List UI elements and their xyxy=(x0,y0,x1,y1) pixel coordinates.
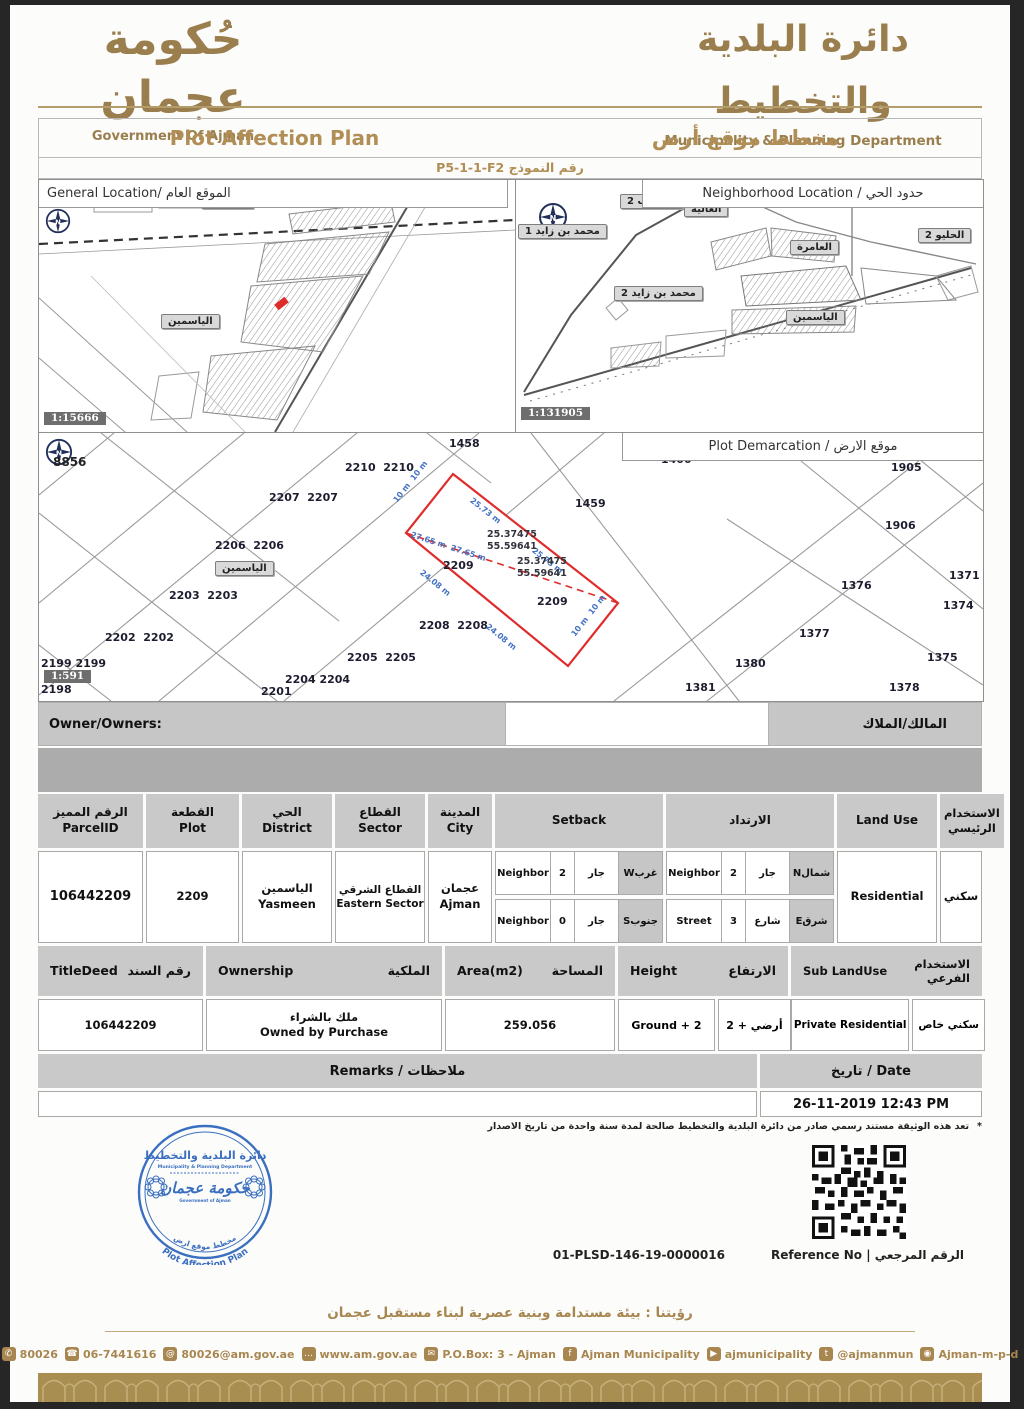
plot-1905: 1905 xyxy=(891,461,922,474)
district-label-amerah: العامرة xyxy=(790,240,839,255)
header-city-en: City xyxy=(447,821,473,837)
setback-west-value: 2 xyxy=(551,851,575,895)
height-value-ar: أرضي + 2 xyxy=(718,999,791,1051)
setback-west-type-ar: جار xyxy=(575,851,619,895)
contact-text: Ajman Municipality xyxy=(581,1348,700,1361)
area-value: 259.056 xyxy=(445,999,615,1051)
reference-row: 01-PLSD-146-19-0000016 Reference No | ال… xyxy=(38,1248,982,1262)
setback-north-type-ar: جار xyxy=(746,851,790,895)
maps-row: General Location/ الموقع العام N الياسمي… xyxy=(38,179,982,431)
header-plot-ar: القطعة xyxy=(171,805,214,821)
city-value-en: Ajman xyxy=(440,897,481,913)
height-value-group: Ground + 2 أرضي + 2 xyxy=(618,999,788,1051)
facebook-icon: f xyxy=(563,1347,577,1361)
owner-label-ar: المالك/الملاك xyxy=(862,717,981,732)
header-district-ar: الحي xyxy=(272,805,301,821)
ownership-table-header: TitleDeed رقم السند Ownership الملكية Ar… xyxy=(38,946,982,996)
district-label-yasmeen: الياسمين xyxy=(161,314,220,329)
contact-text: 06-7441616 xyxy=(83,1348,156,1361)
header-titledeed: TitleDeed رقم السند xyxy=(38,946,203,996)
header-sublanduse-en: Sub LandUse xyxy=(803,964,887,978)
ownership-value: ملك بالشراء Owned by Purchase xyxy=(206,999,442,1051)
sector-value-en: Eastern Sector xyxy=(336,897,423,911)
plot-1378: 1378 xyxy=(889,681,920,694)
header-sublanduse: Sub LandUse الاستخدام الفرعي xyxy=(791,946,982,996)
plot-2203: 2203 2203 xyxy=(169,589,238,602)
contact-text: @ajmanmun xyxy=(837,1348,913,1361)
contact-item: …www.am.gov.ae xyxy=(302,1347,418,1361)
setback-north-east-group: Neighbor 2 جار شمالN Street 3 شارع شرقE xyxy=(666,851,834,943)
setback-south-type-ar: جار xyxy=(575,899,619,943)
titledeed-value: 106442209 xyxy=(38,999,203,1051)
general-map-scale: 1:15666 xyxy=(44,412,106,425)
department-arabic-calligraphy: دائرة البلدية والتخطيط xyxy=(628,9,978,133)
city-value: عجمان Ajman xyxy=(428,851,492,943)
header-setback-ar: الارتداد xyxy=(666,794,834,848)
header-sector-ar: القطاع xyxy=(359,805,401,821)
form-number: رقم النموذج P5-1-1-F2 xyxy=(38,156,982,179)
plot-1375: 1375 xyxy=(927,651,958,664)
plot-1459: 1459 xyxy=(575,497,606,510)
landuse-value: Residential xyxy=(837,851,937,943)
plot-2204: 2204 2204 xyxy=(285,673,350,686)
plot-1381: 1381 xyxy=(685,681,716,694)
sector-value-ar: القطاع الشرقي xyxy=(339,883,421,897)
height-value-en: Ground + 2 xyxy=(618,999,715,1051)
contact-item: ◉Ajman-m-p-d xyxy=(920,1347,1018,1361)
setback-north-value: 2 xyxy=(722,851,746,895)
website-icon: … xyxy=(302,1347,316,1361)
stamp-dept-en: Municipality & Planning Department xyxy=(158,1164,253,1170)
plot-2208: 2208 2208 xyxy=(419,619,488,632)
owner-label-ar-cell: المالك/الملاك xyxy=(768,702,982,746)
setback-east-type: Street xyxy=(666,899,722,943)
coordinate-lon: 55.59641 xyxy=(517,568,567,579)
setback-east-type-ar: شارع xyxy=(746,899,790,943)
header-plot: القطعة Plot xyxy=(146,794,239,848)
disclaimer-bullet: * xyxy=(977,1121,982,1132)
contact-text: P.O.Box: 3 - Ajman xyxy=(442,1348,556,1361)
setback-south-row: Neighbor 0 جار جنوبS xyxy=(495,899,663,943)
demarcation-coordinates: 25.3747555.5964125.3747555.59641 xyxy=(39,433,983,701)
plot-2209: 2209 xyxy=(443,559,474,572)
title-english: Plot Affection Plan xyxy=(39,119,510,157)
header-sublanduse-ar: الاستخدام الفرعي xyxy=(898,957,970,986)
contact-text: Ajman-m-p-d xyxy=(938,1348,1018,1361)
header-titledeed-en: TitleDeed xyxy=(50,963,118,979)
setback-east-direction: شرقE xyxy=(790,899,834,943)
reference-value: 01-PLSD-146-19-0000016 xyxy=(553,1248,725,1262)
city-value-ar: عجمان xyxy=(441,881,479,897)
date-header: تاريخ / Date xyxy=(760,1054,982,1088)
header-parcelid-ar: الرقم المميز xyxy=(53,805,128,821)
contact-item: ☎06-7441616 xyxy=(65,1347,156,1361)
stamp-gov-en: Government of Ajman xyxy=(179,1198,231,1203)
plot-1380: 1380 xyxy=(735,657,766,670)
document-page: حُكومة عجمان Government Of Ajman دائرة ا… xyxy=(10,5,1010,1402)
fax-icon: ☎ xyxy=(65,1347,79,1361)
stamp-gov-ar: حكومة عجمان xyxy=(160,1179,250,1197)
header-ownership: Ownership الملكية xyxy=(206,946,442,996)
header-sector: القطاع Sector xyxy=(335,794,425,848)
owner-value-cell xyxy=(506,702,768,746)
neighborhood-labels: الرقايب 2العاليةالعامرةالحليو 2محمد بن ز… xyxy=(516,180,983,432)
plot-2209: 2209 xyxy=(537,595,568,608)
stamp-dept-ar: دائرة البلدية والتخطيط xyxy=(144,1149,267,1162)
general-location-map: General Location/ الموقع العام N الياسمي… xyxy=(38,179,516,433)
plot-demarcation-map: Plot Demarcation / موقع الارض N 8856 145… xyxy=(38,432,984,702)
neighborhood-location-map: Neighborhood Location / حدود الحي N الرق… xyxy=(515,179,984,433)
date-value: 26-11-2019 12:43 PM xyxy=(760,1091,982,1117)
contact-item: t@ajmanmun xyxy=(819,1347,913,1361)
header-height-ar: الارتفاع xyxy=(728,963,776,979)
contact-item: ✉P.O.Box: 3 - Ajman xyxy=(424,1347,556,1361)
setback-west-south-group: Neighbor 2 جار غربW Neighbor 0 جار جنوبS xyxy=(495,851,663,943)
general-location-title: General Location/ الموقع العام xyxy=(38,179,508,208)
header-mainuse-ar: الاستخدام الرئيسي xyxy=(940,794,1004,848)
vision-statement: رؤيتنا : بيئة مستدامة وبنية عصرية لبناء … xyxy=(10,1305,1010,1321)
setback-west-row: Neighbor 2 جار غربW xyxy=(495,851,663,895)
header-parcelid-en: ParcelID xyxy=(62,821,118,837)
header-district: الحي District xyxy=(242,794,332,848)
header-plot-en: Plot xyxy=(179,821,206,837)
header-setback-en: Setback xyxy=(495,794,663,848)
district-label-mbz2: محمد بن زايد 2 xyxy=(614,286,703,301)
header-landuse: Land Use xyxy=(837,794,937,848)
plot-1906: 1906 xyxy=(885,519,916,532)
svg-text:N: N xyxy=(550,214,557,223)
ownership-value-en: Owned by Purchase xyxy=(260,1025,388,1040)
plot-affection-plan-document: { "colors":{"gold":"#A8864F","stamp_blue… xyxy=(0,0,1024,1409)
setback-north-direction: شمالN xyxy=(790,851,834,895)
header-area: Area(m2) المساحة xyxy=(445,946,615,996)
contact-item: ✆80026 xyxy=(2,1347,58,1361)
header-ownership-en: Ownership xyxy=(218,963,293,979)
title-arabic: مخطط موقع أرض xyxy=(510,119,981,157)
ownership-table-row: 106442209 ملك بالشراء Owned by Purchase … xyxy=(38,999,982,1051)
mainuse-value: سكني xyxy=(940,851,982,943)
contact-text: 80026 xyxy=(20,1348,58,1361)
email-icon: @ xyxy=(163,1347,177,1361)
district-label-yasmeen: الياسمين xyxy=(786,310,845,325)
plot-2198: 2198 xyxy=(41,683,72,696)
contact-text: 80026@am.gov.ae xyxy=(181,1348,294,1361)
phone-icon: ✆ xyxy=(2,1347,16,1361)
setback-west-direction: غربW xyxy=(619,851,663,895)
coordinate-lat: 25.37475 xyxy=(487,529,537,540)
plot-demarcation-title: Plot Demarcation / موقع الارض xyxy=(622,432,984,461)
plot-1377: 1377 xyxy=(799,627,830,640)
district-value-en: Yasmeen xyxy=(258,897,316,913)
district-label-yasmeen: الياسمين xyxy=(215,561,274,576)
contact-item: @80026@am.gov.ae xyxy=(163,1347,294,1361)
setback-east-row: Street 3 شارع شرقE xyxy=(666,899,834,943)
plot-1376: 1376 xyxy=(841,579,872,592)
twitter-icon: t xyxy=(819,1347,833,1361)
setback-south-type: Neighbor xyxy=(495,899,551,943)
plot-2210: 2210 2210 xyxy=(345,461,414,474)
coordinate-lat: 25.37475 xyxy=(517,556,567,567)
remarks-header-row: Remarks / ملاحظات تاريخ / Date xyxy=(38,1054,982,1088)
plot-table-row: 106442209 2209 الياسمين Yasmeen القطاع ا… xyxy=(38,851,982,943)
plot-2205: 2205 2205 xyxy=(347,651,416,664)
government-arabic-calligraphy: حُكومة عجمان xyxy=(58,11,288,127)
setback-west-type: Neighbor xyxy=(495,851,551,895)
sublanduse-value-en: Private Residential xyxy=(791,999,909,1051)
youtube-icon: ▶ xyxy=(707,1347,721,1361)
plot-2206: 2206 2206 xyxy=(215,539,284,552)
qr-code xyxy=(812,1145,906,1239)
owner-label-en: Owner/Owners: xyxy=(39,717,162,732)
benchmark-number: 8856 xyxy=(53,455,86,469)
header-sector-en: Sector xyxy=(358,821,402,837)
sublanduse-value-group: Private Residential سكني خاص xyxy=(791,999,982,1051)
contact-item: fAjman Municipality xyxy=(563,1347,700,1361)
coordinate-lon: 55.59641 xyxy=(487,541,537,552)
sublanduse-value-ar: سكني خاص xyxy=(912,999,985,1051)
separator-band xyxy=(38,748,982,792)
neighborhood-map-scale: 1:131905 xyxy=(521,407,590,420)
ownership-value-ar: ملك بالشراء xyxy=(290,1010,358,1025)
document-title-bar: Plot Affection Plan مخطط موقع أرض xyxy=(38,118,982,158)
district-label-helio2: الحليو 2 xyxy=(918,228,971,243)
setback-north-type: Neighbor xyxy=(666,851,722,895)
owner-row: Owner/Owners: المالك/الملاك xyxy=(38,702,982,746)
contact-text: www.am.gov.ae xyxy=(320,1348,418,1361)
remarks-data-row: 26-11-2019 12:43 PM xyxy=(38,1091,982,1117)
plot-1458: 1458 xyxy=(449,437,480,450)
decorative-footer-band xyxy=(38,1373,982,1402)
plot-2207: 2207 2207 xyxy=(269,491,338,504)
district-label-mbz1: محمد بن زايد 1 xyxy=(518,224,607,239)
setback-north-row: Neighbor 2 جار شمالN xyxy=(666,851,834,895)
plot-table-header: الرقم المميز ParcelID القطعة Plot الحي D… xyxy=(38,794,982,848)
header-height: Height الارتفاع xyxy=(618,946,788,996)
setback-south-direction: جنوبS xyxy=(619,899,663,943)
pobox-icon: ✉ xyxy=(424,1347,438,1361)
parcelid-value: 106442209 xyxy=(38,851,143,943)
demarcation-map-scale: 1:591 xyxy=(44,670,91,683)
remarks-value-cell xyxy=(38,1091,757,1117)
disclaimer-text: تعد هذه الوثيقة مستند رسمي صادر من دائرة… xyxy=(488,1121,970,1132)
header-titledeed-ar: رقم السند xyxy=(127,963,191,979)
official-stamp: دائرة البلدية والتخطيط Municipality & Pl… xyxy=(110,1123,300,1265)
header-area-ar: المساحة xyxy=(552,963,603,979)
plot-2199: 2199 2199 xyxy=(41,657,106,670)
setback-east-value: 3 xyxy=(722,899,746,943)
district-value: الياسمين Yasmeen xyxy=(242,851,332,943)
plot-1374: 1374 xyxy=(943,599,974,612)
header-divider xyxy=(38,106,982,108)
sector-value: القطاع الشرقي Eastern Sector xyxy=(335,851,425,943)
neighborhood-location-title: Neighborhood Location / حدود الحي xyxy=(642,179,984,208)
svg-text:N: N xyxy=(55,218,61,226)
header-ownership-ar: الملكية xyxy=(388,963,430,979)
setback-south-value: 0 xyxy=(551,899,575,943)
contact-bar: ✆80026☎06-7441616@80026@am.gov.ae…www.am… xyxy=(10,1347,1010,1361)
reference-label: Reference No | الرقم المرجعي xyxy=(771,1248,964,1262)
header-parcelid: الرقم المميز ParcelID xyxy=(38,794,143,848)
plot-2201: 2201 xyxy=(261,685,292,698)
contact-text: ajmunicipality xyxy=(725,1348,813,1361)
instagram-icon: ◉ xyxy=(920,1347,934,1361)
compass-icon: N xyxy=(45,208,71,234)
plot-value: 2209 xyxy=(146,851,239,943)
header-city-ar: المدينة xyxy=(440,805,480,821)
header-district-en: District xyxy=(262,821,312,837)
vision-divider xyxy=(105,1331,915,1332)
header-city: المدينة City xyxy=(428,794,492,848)
contact-item: ▶ajmunicipality xyxy=(707,1347,813,1361)
remarks-header: Remarks / ملاحظات xyxy=(38,1054,757,1088)
header-area-en: Area(m2) xyxy=(457,963,523,979)
owner-label-en-cell: Owner/Owners: xyxy=(38,702,506,746)
district-value-ar: الياسمين xyxy=(261,881,312,897)
plot-1371: 1371 xyxy=(949,569,980,582)
header-height-en: Height xyxy=(630,963,677,979)
plot-2202: 2202 2202 xyxy=(105,631,174,644)
